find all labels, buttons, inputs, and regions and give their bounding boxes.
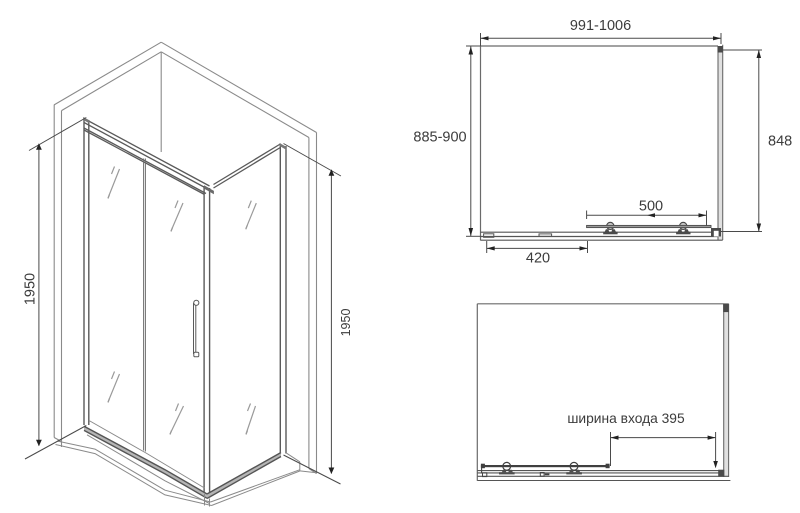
- svg-text:ширина входа 395: ширина входа 395: [567, 411, 685, 426]
- svg-text:1950: 1950: [339, 309, 353, 337]
- svg-text:848: 848: [768, 134, 792, 150]
- svg-text:885-900: 885-900: [413, 130, 466, 146]
- svg-text:500: 500: [639, 199, 663, 215]
- svg-text:420: 420: [526, 251, 550, 267]
- svg-text:991-1006: 991-1006: [570, 18, 631, 34]
- svg-text:1950: 1950: [23, 273, 39, 305]
